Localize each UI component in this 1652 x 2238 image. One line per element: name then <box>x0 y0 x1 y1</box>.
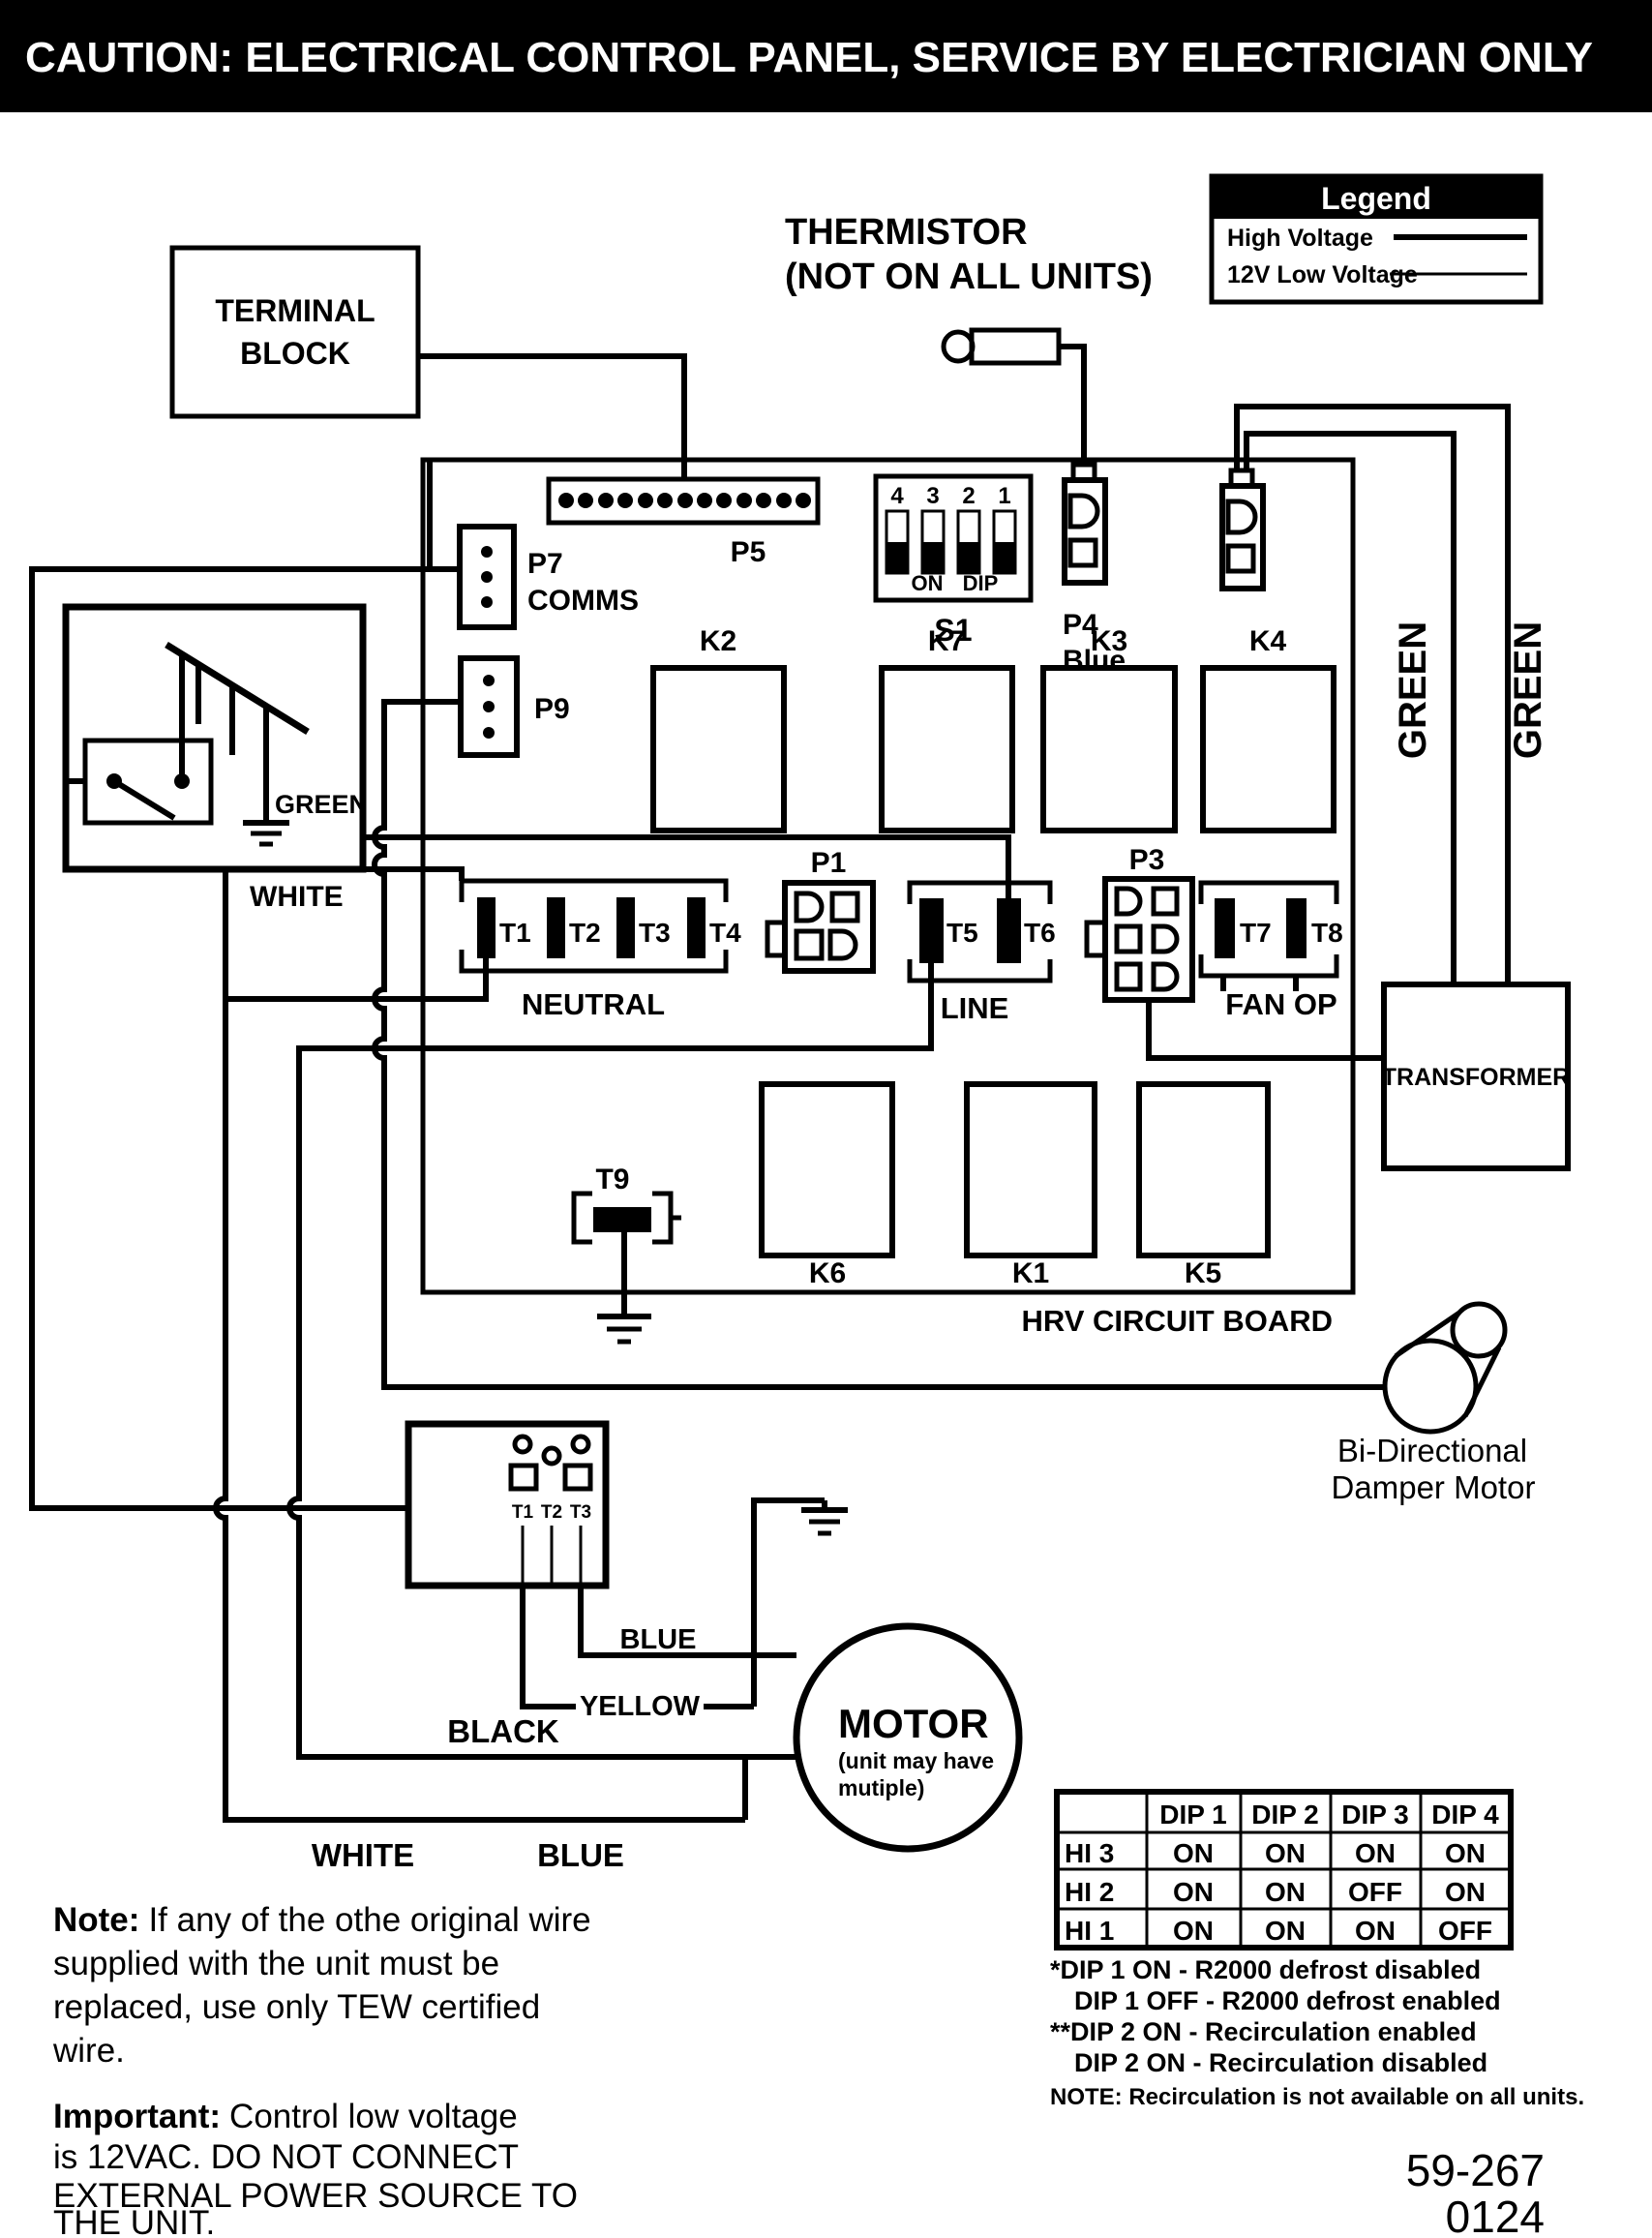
t7-label: T7 <box>1240 918 1272 948</box>
relay-k2: K2 <box>653 625 784 831</box>
k4-box <box>1203 668 1334 831</box>
thermistor: THERMISTOR (NOT ON ALL UNITS) <box>785 212 1153 465</box>
dip-row-label: HI 1 <box>1065 1916 1114 1946</box>
dip-switch-levers-icon <box>886 511 1015 573</box>
t9-body <box>593 1207 651 1232</box>
neutral-label: NEUTRAL <box>522 987 665 1021</box>
footnote-3: **DIP 2 ON - Recirculation enabled <box>1050 2017 1477 2046</box>
dip-row-label: HI 2 <box>1065 1877 1114 1907</box>
motor-t1-label: T1 <box>512 1502 534 1523</box>
t3-terminal <box>616 897 635 958</box>
relay-k7: K7 <box>882 625 1012 831</box>
caution-banner: CAUTION: ELECTRICAL CONTROL PANEL, SERVI… <box>0 0 1652 112</box>
line-label: LINE <box>941 991 1009 1025</box>
part-number: 59-267 0124 <box>1406 2145 1545 2238</box>
svg-text:2: 2 <box>962 483 975 509</box>
wall-plug-circuit: GREEN WHITE <box>66 607 368 913</box>
dip-cell: ON <box>1265 1838 1306 1868</box>
p4-hole-d <box>1070 496 1097 527</box>
footnote-4: DIP 2 ON - Recirculation disabled <box>1074 2048 1487 2077</box>
green-connector-hole-d <box>1228 501 1255 532</box>
p1-label: P1 <box>811 847 847 879</box>
motor-sub-label-1: (unit may have <box>838 1748 994 1773</box>
terminal-block-label-2: BLOCK <box>240 336 350 371</box>
p5-label: P5 <box>731 536 766 568</box>
k2-label: K2 <box>700 625 736 657</box>
k1-box <box>967 1084 1095 1255</box>
relay-k5: K5 <box>1139 1084 1268 1289</box>
k7-box <box>882 668 1012 831</box>
t7-terminal <box>1215 898 1235 958</box>
ground-icon <box>243 823 289 844</box>
t9-bracket-right <box>652 1194 671 1242</box>
part-number-line-1: 59-267 <box>1406 2145 1545 2195</box>
green-wire-label-2: GREEN <box>1507 621 1549 759</box>
t1-terminal <box>477 897 496 958</box>
p7-label: P7 <box>527 548 563 580</box>
terminal-block-label-1: TERMINAL <box>215 293 375 328</box>
dip-row-label: HI 3 <box>1065 1838 1114 1868</box>
k5-label: K5 <box>1185 1257 1221 1289</box>
dip-cell: ON <box>1355 1916 1396 1946</box>
wiring-diagram-page: CAUTION: ELECTRICAL CONTROL PANEL, SERVI… <box>0 0 1652 2238</box>
p9-label: P9 <box>534 693 570 725</box>
dip-col-4: DIP 4 <box>1431 1799 1499 1830</box>
fan-op-block: T7 T8 FAN OP <box>1201 883 1343 1021</box>
dip-col-3: DIP 3 <box>1341 1799 1409 1830</box>
t9-bracket-left <box>574 1194 592 1242</box>
k5-box <box>1139 1084 1268 1255</box>
yellow-wire-label-group: YELLOW <box>576 1686 704 1722</box>
yellow-wire-label: YELLOW <box>580 1691 701 1722</box>
k3-label: K3 <box>1091 625 1127 657</box>
transformer: TRANSFORMER <box>1382 984 1570 1168</box>
motor-sub-label-2: mutiple) <box>838 1775 924 1800</box>
k4-label: K4 <box>1249 625 1287 657</box>
dip-col-1: DIP 1 <box>1159 1799 1227 1830</box>
connector-p9: P9 <box>461 658 570 755</box>
dip-cell: ON <box>1445 1877 1486 1907</box>
legend-low-voltage-label: 12V Low Voltage <box>1227 261 1418 288</box>
dip-cell: ON <box>1445 1838 1486 1868</box>
connector-p1: P1 <box>767 847 873 971</box>
green-wire-label-1: GREEN <box>1392 621 1434 759</box>
caution-title: CAUTION: ELECTRICAL CONTROL PANEL, SERVI… <box>25 34 1593 81</box>
motor-connector-box: T1 T2 T3 <box>408 1424 606 1586</box>
t8-terminal <box>1286 898 1307 958</box>
p4-hole-square <box>1070 540 1096 565</box>
fan-op-label: FAN OP <box>1225 987 1337 1021</box>
thermistor-label-2: (NOT ON ALL UNITS) <box>785 257 1153 297</box>
white-bottom-wire <box>216 869 745 1820</box>
t2-label: T2 <box>569 918 601 948</box>
t5-terminal <box>919 898 944 963</box>
t4-terminal <box>687 897 706 958</box>
note-line-4: wire. <box>52 2032 125 2070</box>
connector-p7: P7 COMMS <box>460 527 639 627</box>
damper-label-1: Bi-Directional <box>1337 1433 1527 1468</box>
switch-icon <box>66 741 211 823</box>
k6-box <box>762 1084 892 1255</box>
svg-text:1: 1 <box>998 483 1010 509</box>
motor: MOTOR (unit may have mutiple) <box>796 1626 1019 1849</box>
s1-dip-label: DIP <box>963 571 999 595</box>
k7-label: K7 <box>928 625 965 657</box>
relay-k4: K4 <box>1203 625 1334 831</box>
dip-switch-s1: 4 3 2 1 ON DIP S1 <box>876 476 1031 648</box>
relay-k1: K1 <box>967 1084 1095 1289</box>
terminal-block-box <box>172 248 418 416</box>
thermistor-icon <box>944 330 1059 363</box>
ground-icon <box>597 1316 651 1342</box>
p5-pins-icon <box>558 493 811 508</box>
dip-cell: ON <box>1173 1877 1214 1907</box>
note-line-2: supplied with the unit must be <box>53 1945 499 1982</box>
terminal-block: TERMINAL BLOCK <box>172 248 684 479</box>
important-line-2: is 12VAC. DO NOT CONNECT <box>53 2138 519 2176</box>
k1-label: K1 <box>1012 1257 1049 1289</box>
part-number-line-2: 0124 <box>1446 2192 1545 2238</box>
t8-label: T8 <box>1311 918 1343 948</box>
t1-white-wire <box>225 958 486 999</box>
dip-table: DIP 1 DIP 2 DIP 3 DIP 4 HI 3 ON ON ON ON… <box>1057 1792 1511 1948</box>
note-block: Note:If any of the othe original wire su… <box>52 1901 591 2238</box>
white-left-label: WHITE <box>250 881 344 913</box>
dip-cell: ON <box>1173 1838 1214 1868</box>
t5-label: T5 <box>946 918 978 948</box>
t6-label: T6 <box>1024 918 1056 948</box>
damper-motor: Bi-Directional Damper Motor <box>1332 1304 1536 1505</box>
note-line-1: Note:If any of the othe original wire <box>53 1901 591 1939</box>
footnote-1: *DIP 1 ON - R2000 defrost disabled <box>1050 1955 1481 1984</box>
dip-cell: OFF <box>1348 1877 1402 1907</box>
blue-bottom-label: BLUE <box>537 1837 624 1873</box>
k2-box <box>653 668 784 831</box>
svg-text:3: 3 <box>926 483 939 509</box>
dip-footnotes: *DIP 1 ON - R2000 defrost disabled DIP 1… <box>1050 1955 1584 2110</box>
board-label: HRV CIRCUIT BOARD <box>1022 1304 1334 1338</box>
t9-component: T9 <box>574 1164 681 1342</box>
transformer-label: TRANSFORMER <box>1382 1064 1570 1091</box>
green-connector-hole-square <box>1228 546 1253 571</box>
footnote-2: DIP 1 OFF - R2000 defrost enabled <box>1074 1986 1501 2015</box>
t6-terminal <box>997 898 1021 963</box>
p7-comms-label: COMMS <box>527 585 639 617</box>
neutral-block: T1 T2 T3 T4 NEUTRAL <box>462 881 741 1021</box>
connector-p3: P3 <box>1087 844 1384 1058</box>
motor-t2-label: T2 <box>541 1502 562 1523</box>
green-left-label: GREEN <box>275 790 368 819</box>
neutral-bracket-top <box>462 881 726 902</box>
connector-green <box>1222 470 1263 589</box>
black-wire-label: BLACK <box>447 1713 559 1749</box>
legend-high-voltage-label: High Voltage <box>1227 225 1373 252</box>
dip-cell: ON <box>1265 1916 1306 1946</box>
dip-cell: ON <box>1355 1838 1396 1868</box>
footnote-note: NOTE: Recirculation is not available on … <box>1050 2084 1584 2110</box>
legend: Legend High Voltage 12V Low Voltage <box>1212 176 1541 302</box>
t4-label: T4 <box>709 918 741 948</box>
relay-k6: K6 <box>762 1084 892 1289</box>
s1-on-label: ON <box>912 571 944 595</box>
thermistor-label-1: THERMISTOR <box>785 212 1028 253</box>
p7-feed-wire <box>32 569 460 1508</box>
neutral-bracket-bottom <box>462 950 726 971</box>
important-line-4: THE UNIT. <box>53 2204 215 2238</box>
dip-col-2: DIP 2 <box>1251 1799 1319 1830</box>
thermistor-wire <box>1059 347 1084 465</box>
damper-label-2: Damper Motor <box>1332 1469 1536 1505</box>
ground-icon <box>801 1500 848 1533</box>
dip-cell: OFF <box>1438 1916 1492 1946</box>
blue-wire-label: BLUE <box>620 1624 697 1655</box>
dip-cell: ON <box>1173 1916 1214 1946</box>
t3-label: T3 <box>639 918 671 948</box>
t2-terminal <box>547 897 565 958</box>
green-wire-outer <box>1237 407 1508 984</box>
wiring-diagram: CAUTION: ELECTRICAL CONTROL PANEL, SERVI… <box>0 0 1652 2238</box>
dip-cell: ON <box>1265 1877 1306 1907</box>
connector-p5: P5 <box>549 479 818 568</box>
svg-text:4: 4 <box>890 483 904 509</box>
k6-label: K6 <box>809 1257 846 1289</box>
t1-label: T1 <box>499 918 531 948</box>
legend-header: Legend <box>1321 181 1431 216</box>
p3-label: P3 <box>1129 844 1165 876</box>
motor-t3-label: T3 <box>570 1502 591 1523</box>
note-line-3: replaced, use only TEW certified <box>53 1988 540 2026</box>
important-line-1: Important:Control low voltage <box>53 2098 518 2135</box>
k3-box <box>1043 668 1175 831</box>
motor-label: MOTOR <box>838 1701 989 1746</box>
t9-label: T9 <box>595 1164 629 1195</box>
white-bottom-label: WHITE <box>312 1837 414 1873</box>
